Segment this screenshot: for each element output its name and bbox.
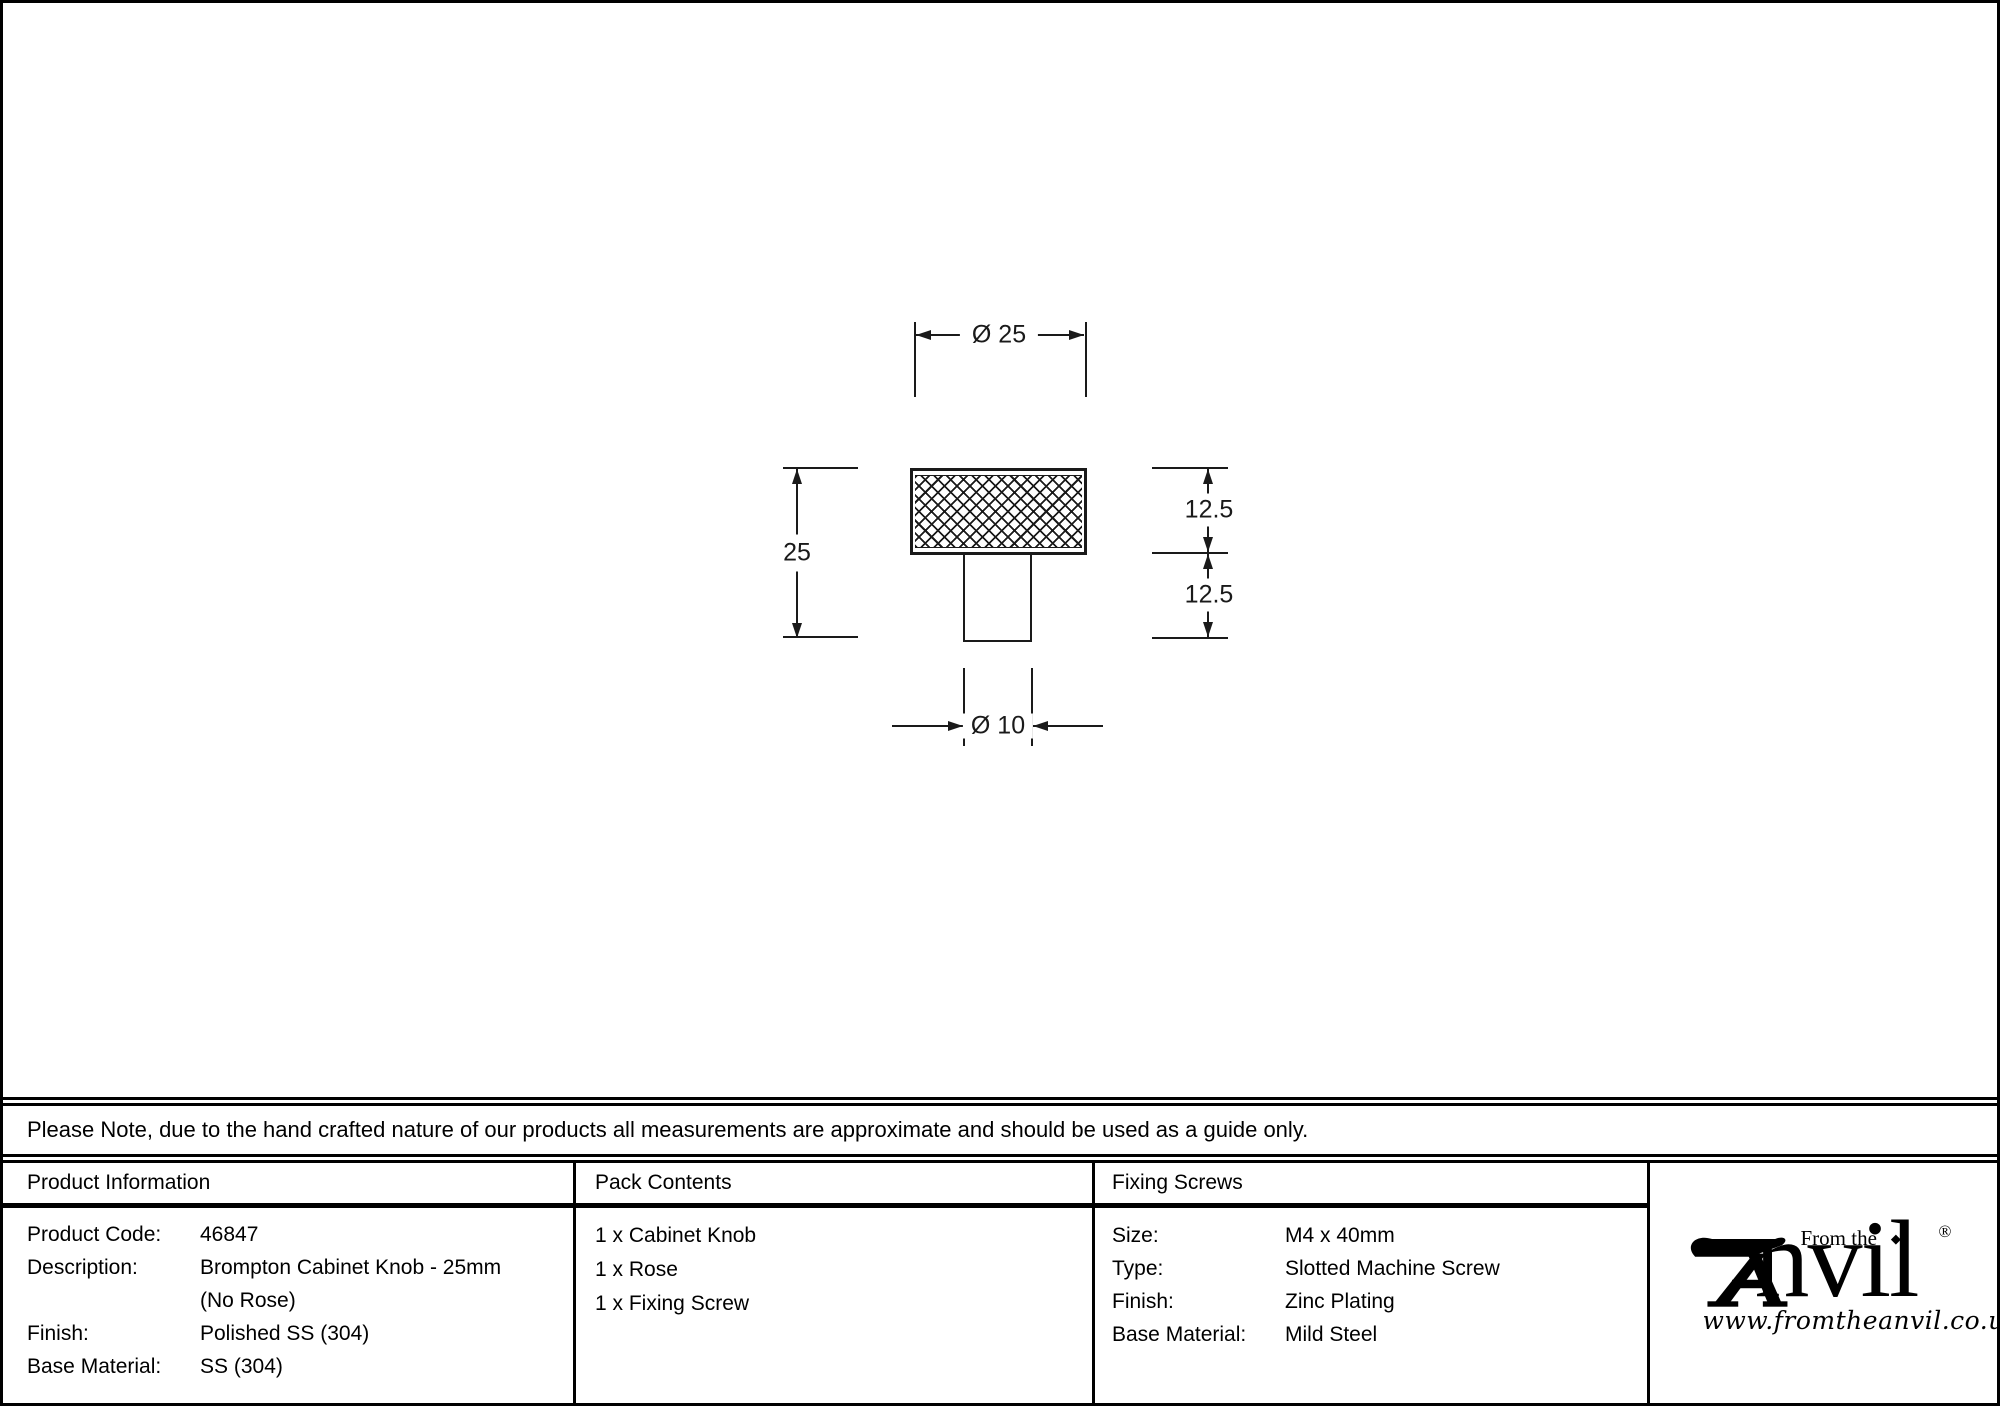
- base-material-value: SS (304): [200, 1350, 283, 1383]
- product-details-table: Product Information Pack Contents Fixing…: [3, 1163, 1997, 1403]
- screw-type-row: Type: Slotted Machine Screw: [1112, 1252, 1639, 1285]
- dim-right-upper-label: 12.5: [1179, 494, 1240, 527]
- screw-material-value: Mild Steel: [1285, 1318, 1377, 1351]
- dim-left-label: 25: [779, 535, 815, 572]
- finish-label: Finish:: [27, 1317, 200, 1350]
- dim-bottom-label: Ø 10: [963, 714, 1033, 739]
- screw-type-value: Slotted Machine Screw: [1285, 1252, 1500, 1285]
- screw-size-row: Size: M4 x 40mm: [1112, 1219, 1639, 1252]
- dim-right-tick-top: [1152, 467, 1228, 469]
- knob-head-knurled: [910, 468, 1087, 555]
- pack-item: 1 x Rose: [595, 1253, 1084, 1287]
- header-fixing-screws-label: Fixing Screws: [1112, 1171, 1243, 1195]
- logo-wordmark: nvil: [1755, 1204, 1918, 1314]
- logo-website-url: www.fromtheanvil.co.uk: [1703, 1306, 2000, 1335]
- dim-right-tick-middle: [1152, 552, 1228, 554]
- knurl-crosshatch-pattern: [915, 475, 1082, 548]
- dim-right-lower-arrow-down: [1203, 622, 1213, 637]
- product-spec-sheet: Ø 25 25 12.5 12.5 Ø 10 P: [0, 0, 2000, 1406]
- description-label: Description:: [27, 1251, 200, 1284]
- base-material-label: Base Material:: [27, 1350, 200, 1383]
- screw-finish-label: Finish:: [1112, 1285, 1285, 1318]
- note-text: Please Note, due to the hand crafted nat…: [27, 1117, 1308, 1143]
- description-value-line2: (No Rose): [200, 1284, 501, 1317]
- finish-value: Polished SS (304): [200, 1317, 369, 1350]
- base-material-row: Base Material: SS (304): [27, 1350, 565, 1383]
- screw-size-label: Size:: [1112, 1219, 1285, 1252]
- fixing-screws-body: Size: M4 x 40mm Type: Slotted Machine Sc…: [1092, 1208, 1647, 1403]
- dim-top-label: Ø 25: [960, 323, 1038, 348]
- dim-top-arrow-left: [916, 330, 931, 340]
- dim-right-tick-bottom: [1152, 637, 1228, 639]
- measurement-disclaimer-note: Please Note, due to the hand crafted nat…: [3, 1097, 1997, 1163]
- knob-stem: [963, 555, 1032, 642]
- screw-material-label: Base Material:: [1112, 1318, 1285, 1351]
- header-product-information: Product Information: [3, 1163, 573, 1208]
- description-value: Brompton Cabinet Knob - 25mm (No Rose): [200, 1251, 501, 1317]
- pack-item: 1 x Fixing Screw: [595, 1287, 1084, 1321]
- header-product-information-label: Product Information: [27, 1171, 210, 1195]
- header-pack-contents: Pack Contents: [573, 1163, 1092, 1208]
- from-the-anvil-logo: From the◆ nvil ® www.fromtheanvil.co.uk: [1689, 1224, 1969, 1342]
- dim-left-arrow-down: [792, 623, 802, 638]
- brand-logo-cell: From the◆ nvil ® www.fromtheanvil.co.uk: [1647, 1163, 1997, 1403]
- product-code-row: Product Code: 46847: [27, 1218, 565, 1251]
- product-code-value: 46847: [200, 1218, 258, 1251]
- screw-size-value: M4 x 40mm: [1285, 1219, 1395, 1252]
- product-information-body: Product Code: 46847 Description: Brompto…: [3, 1208, 573, 1403]
- dim-bottom-arrow-right: [948, 721, 963, 731]
- dim-right-lower-label: 12.5: [1179, 579, 1240, 612]
- dim-right-lower-arrow-up: [1203, 554, 1213, 569]
- finish-row: Finish: Polished SS (304): [27, 1317, 565, 1350]
- technical-drawing: Ø 25 25 12.5 12.5 Ø 10: [3, 3, 1997, 1091]
- header-fixing-screws: Fixing Screws: [1092, 1163, 1647, 1208]
- dim-top-extension-right: [1085, 322, 1087, 397]
- pack-item: 1 x Cabinet Knob: [595, 1219, 1084, 1253]
- screw-finish-value: Zinc Plating: [1285, 1285, 1395, 1318]
- dim-left-arrow-up: [792, 469, 802, 484]
- header-pack-contents-label: Pack Contents: [595, 1171, 732, 1195]
- description-value-line1: Brompton Cabinet Knob - 25mm: [200, 1251, 501, 1284]
- product-code-label: Product Code:: [27, 1218, 200, 1251]
- registered-trademark-icon: ®: [1939, 1222, 1952, 1242]
- dim-right-upper-arrow-up: [1203, 469, 1213, 484]
- screw-finish-row: Finish: Zinc Plating: [1112, 1285, 1639, 1318]
- dim-right-upper-arrow-down: [1203, 537, 1213, 552]
- dim-top-arrow-right: [1069, 330, 1084, 340]
- screw-material-row: Base Material: Mild Steel: [1112, 1318, 1639, 1351]
- dim-bottom-arrow-left: [1033, 721, 1048, 731]
- pack-contents-body: 1 x Cabinet Knob 1 x Rose 1 x Fixing Scr…: [573, 1208, 1092, 1403]
- description-row: Description: Brompton Cabinet Knob - 25m…: [27, 1251, 565, 1317]
- screw-type-label: Type:: [1112, 1252, 1285, 1285]
